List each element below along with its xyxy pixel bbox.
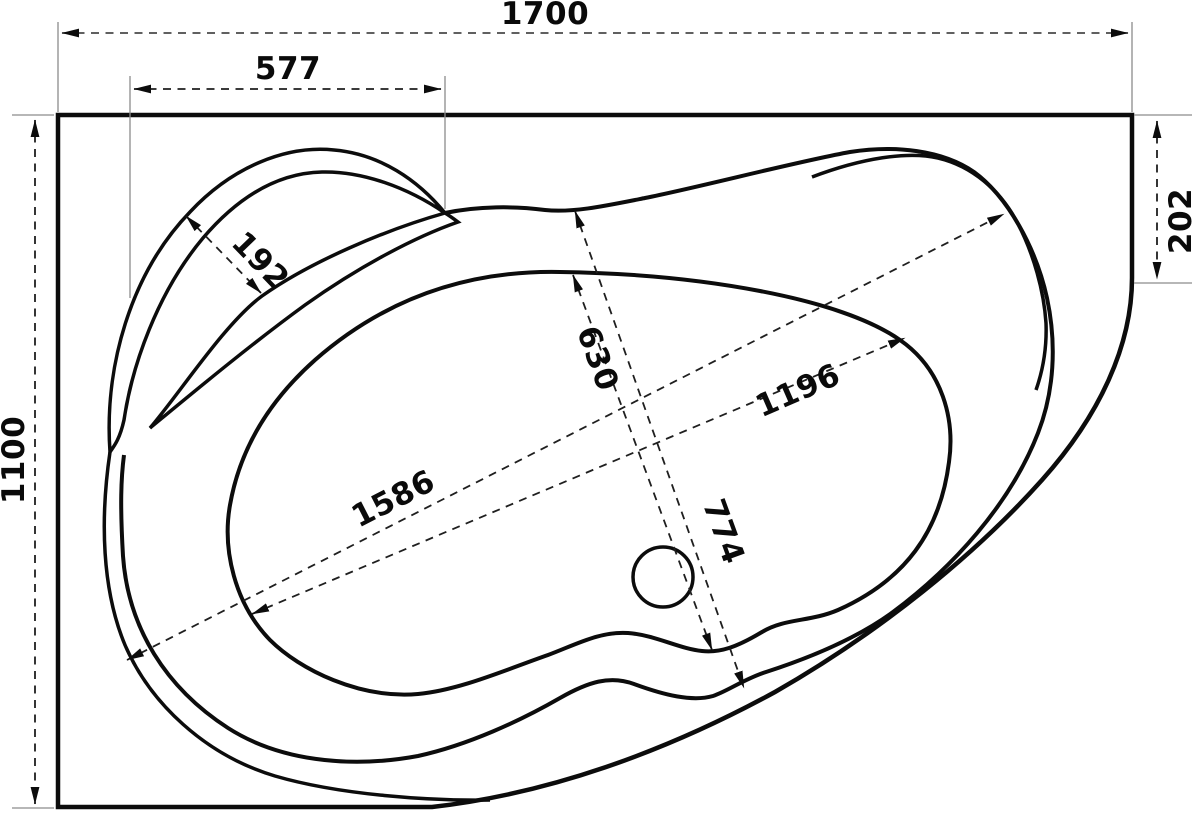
dimension-basin-inner-length: 1196 — [252, 338, 905, 614]
dimension-right-edge-depth: 202 — [1134, 115, 1199, 283]
bathtub-technical-drawing: 1700 577 1100 202 192 630 774 1586 — [0, 0, 1200, 813]
dimension-headrest-rim-width: 192 — [186, 216, 296, 297]
dimension-label-1700: 1700 — [501, 0, 589, 32]
dimension-label-1586: 1586 — [346, 463, 441, 535]
dimension-label-202: 202 — [1163, 188, 1199, 254]
dimension-label-1100: 1100 — [0, 416, 32, 504]
dimension-label-1196: 1196 — [750, 357, 845, 425]
dimension-overall-width: 1700 — [58, 0, 1132, 112]
bathtub-technical-drawing-page: 1700 577 1100 202 192 630 774 1586 — [0, 0, 1200, 813]
dimension-label-577: 577 — [255, 51, 321, 87]
dimension-label-630: 630 — [569, 321, 625, 396]
tub-outlines — [58, 115, 1132, 807]
dimension-label-192: 192 — [224, 225, 296, 298]
dimension-label-774: 774 — [695, 494, 751, 569]
dimension-overall-depth: 1100 — [0, 115, 54, 808]
headrest-crescent-outline — [109, 149, 445, 452]
rim-inner-band-curve — [812, 155, 1046, 390]
dimension-rim-width: 774 — [575, 211, 752, 688]
left-rim-curve — [104, 452, 490, 800]
dimension-headrest-edge-width: 577 — [130, 51, 445, 298]
dimension-basin-inner-width: 630 — [569, 275, 712, 650]
